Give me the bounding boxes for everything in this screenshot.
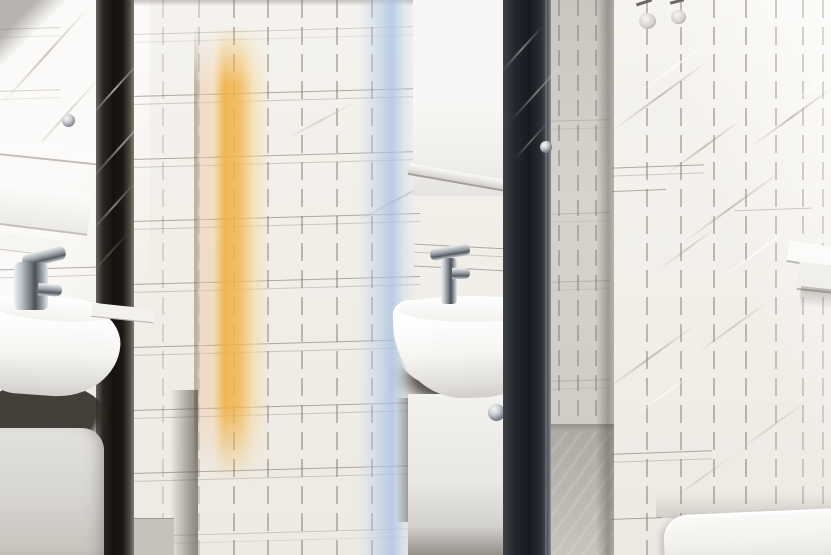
left-pedestal: [0, 428, 104, 555]
door-knob: [540, 141, 552, 153]
wall-lamp-icon: [639, 13, 656, 29]
toilet-cistern: [663, 508, 831, 555]
wall-lamp-icon: [671, 10, 686, 24]
grout-line-v: [745, 0, 747, 555]
grout-line-h: [0, 27, 60, 38]
vanity-left-slit: [396, 398, 408, 522]
center-tap-body: [441, 258, 457, 304]
grout-line-v: [713, 0, 715, 555]
doorjamb-shadow: [596, 0, 616, 555]
cabinet-knob: [62, 114, 75, 127]
left-tap-spout: [38, 283, 63, 297]
center-tap-spout: [452, 268, 470, 279]
wall-shadow-edge: [170, 390, 198, 555]
door-edge-highlight: [545, 0, 547, 555]
grout-line-v: [775, 0, 777, 555]
floor-sliver: [134, 518, 174, 555]
amber-door-edge: [194, 26, 270, 488]
bathroom-photo: [0, 0, 831, 555]
grout-line-v: [680, 0, 682, 555]
corner-shelf-shadow: [799, 286, 831, 310]
